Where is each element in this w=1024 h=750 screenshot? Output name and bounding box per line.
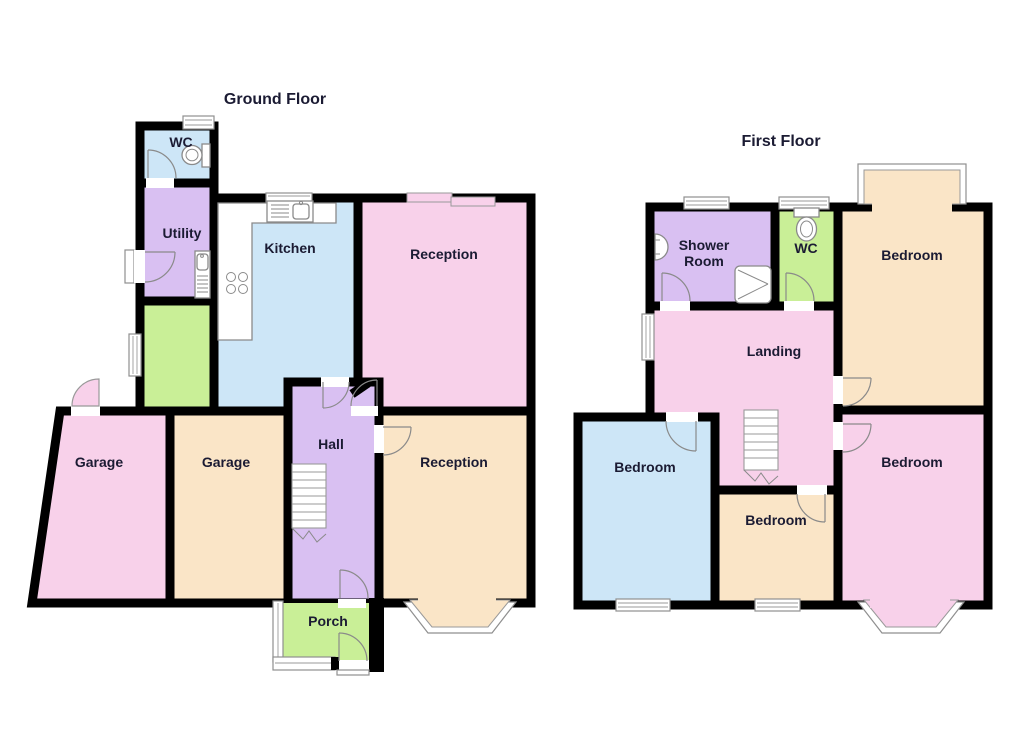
room-label-garage-left: Garage: [75, 454, 123, 470]
porch-threshold: [337, 670, 369, 675]
door-opening: [351, 406, 378, 416]
bay-opening: [418, 598, 496, 608]
door-swing-arc: [72, 379, 99, 406]
window-frame: [451, 197, 495, 206]
window-landing-left: [642, 314, 654, 360]
window-bedroom-left-bottom: [616, 599, 670, 611]
room-label-bedroom-rear-right: Bedroom: [881, 454, 942, 470]
door-opening: [134, 250, 145, 283]
porch-post: [331, 657, 339, 670]
floorplan-canvas: Ground Floor: [0, 0, 1024, 745]
sink-bowl: [293, 204, 309, 219]
window-frame: [684, 197, 729, 209]
toilet-tank: [794, 208, 819, 217]
room-label-porch: Porch: [308, 613, 348, 629]
window-frame: [755, 599, 800, 611]
room-label-bedroom-front: Bedroom: [881, 247, 942, 263]
room-label-utility: Utility: [163, 225, 202, 241]
shower-tray-icon: [735, 266, 771, 303]
door-opening: [833, 422, 843, 450]
room-garage-right: [170, 411, 288, 603]
room-bedroom-rear-middle: [715, 490, 838, 605]
floorplan-page: Ground Floor: [0, 0, 1024, 745]
room-bedroom-rear-left: [578, 417, 715, 605]
room-label-kitchen: Kitchen: [264, 240, 315, 256]
bay-window-bedroom-rear: [858, 598, 964, 633]
door-casing: [125, 250, 134, 283]
toilet-tank: [202, 144, 210, 167]
window-frame: [129, 334, 141, 376]
door-opening: [666, 412, 698, 422]
door-garage: [71, 379, 100, 416]
room-label-wc-ground: WC: [169, 134, 192, 150]
room-label-shower-line1: Shower: [679, 237, 730, 253]
ground-floor-plan: Ground Floor: [32, 91, 531, 675]
sink-bowl: [197, 254, 208, 270]
door-opening: [71, 406, 100, 416]
toilet-icon-first: [794, 208, 819, 241]
bay-frame-inner: [864, 170, 960, 204]
window-frame: [616, 599, 670, 611]
window-frame: [407, 193, 452, 202]
room-bedroom-front: [838, 207, 988, 410]
bay-opening: [870, 598, 950, 608]
room-reception-front: [358, 198, 531, 411]
door-opening: [797, 485, 827, 495]
door-opening: [374, 425, 384, 453]
window-shower-top: [684, 197, 729, 209]
kitchen-sink-icon: [267, 201, 313, 222]
door-opening: [784, 301, 814, 311]
room-label-wc-first: WC: [794, 240, 817, 256]
utility-sink-icon: [195, 251, 210, 298]
room-label-shower-line2: Room: [684, 253, 724, 269]
room-reception-rear: [379, 411, 531, 603]
room-label-hall: Hall: [318, 436, 344, 452]
door-opening: [660, 301, 690, 311]
room-label-reception-front: Reception: [410, 246, 478, 262]
room-label-bedroom-rear-left: Bedroom: [614, 459, 675, 475]
door-opening: [833, 376, 843, 404]
window-frame: [183, 116, 214, 129]
room-porch: [283, 603, 374, 660]
room-garage-left: [32, 411, 170, 603]
stair-flight: [744, 410, 778, 470]
porch-window-bottom: [273, 657, 335, 670]
window-frame: [779, 197, 829, 209]
porch-wall-right: [369, 598, 384, 672]
door-opening: [321, 377, 349, 387]
first-floor-title: First Floor: [741, 133, 820, 150]
bay-opening: [872, 202, 952, 212]
first-floor-plan: First Floor: [578, 133, 988, 633]
room-label-garage-right: Garage: [202, 454, 250, 470]
window-bedroom-middle-bottom: [755, 599, 800, 611]
window-frame: [642, 314, 654, 360]
room-label-reception-rear: Reception: [420, 454, 488, 470]
ground-floor-title: Ground Floor: [224, 91, 326, 108]
window-store-left: [129, 334, 141, 376]
door-opening: [146, 178, 174, 188]
room-label-bedroom-rear-middle: Bedroom: [745, 512, 806, 528]
room-label-landing: Landing: [747, 343, 801, 359]
window-wc-top: [183, 116, 214, 129]
room-bedroom-rear-right: [838, 410, 988, 605]
bay-window-bedroom-front: [858, 164, 966, 212]
window-wc-first-top: [779, 197, 829, 209]
door-opening: [338, 599, 366, 608]
room-store-ground: [140, 301, 214, 411]
